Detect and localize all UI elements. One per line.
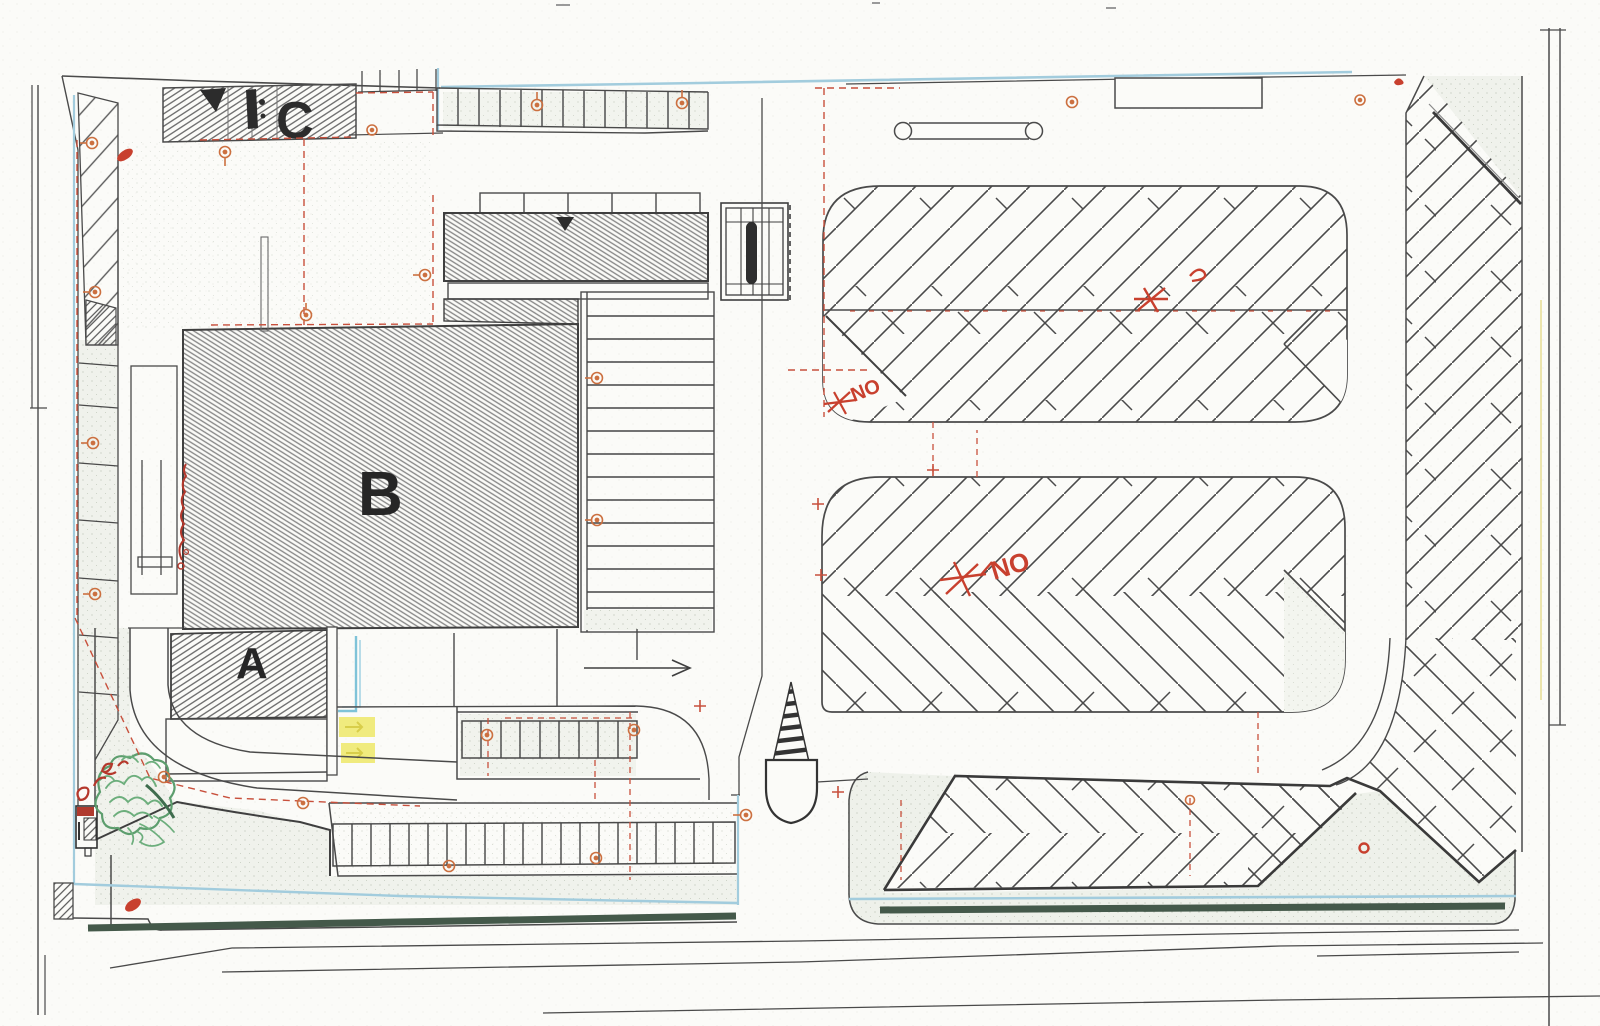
svg-text:A: A: [236, 639, 268, 688]
svg-text:B: B: [358, 460, 403, 529]
svg-text:C: C: [276, 92, 314, 150]
